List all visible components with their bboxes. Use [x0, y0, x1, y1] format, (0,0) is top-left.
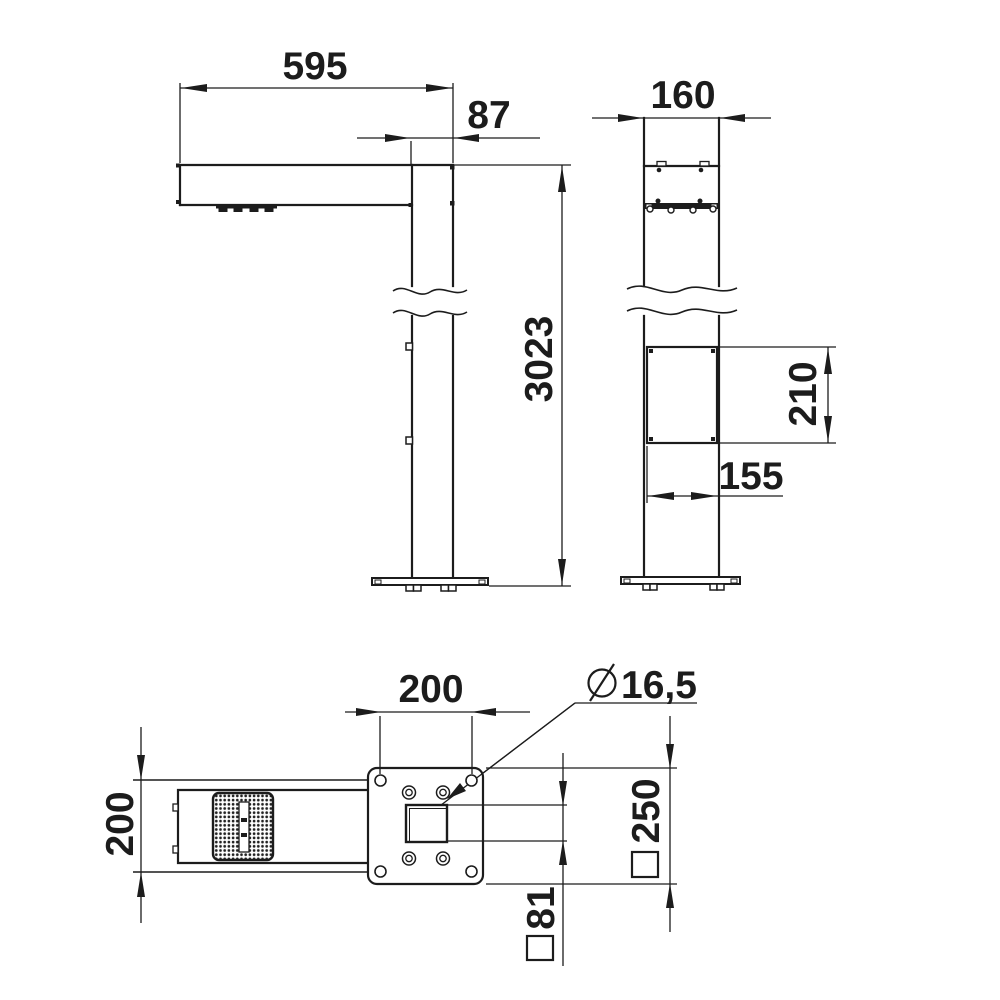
arrowhead	[618, 114, 643, 122]
arrowhead	[137, 755, 145, 780]
anchor-hole	[466, 866, 477, 877]
arrowhead	[691, 492, 717, 500]
square-symbol	[527, 936, 553, 960]
dim-pole-depth: 160	[592, 74, 771, 122]
dim-door-width: 155	[647, 446, 784, 503]
dim-label-pole-depth: 160	[650, 74, 715, 117]
arrowhead	[137, 872, 145, 897]
door-corner-screw	[649, 349, 653, 353]
door-outline	[647, 347, 717, 443]
arrowhead	[559, 781, 567, 806]
break-wave-bottom	[627, 308, 737, 314]
dim-label-hole-spacing: 200	[398, 668, 463, 711]
arrowhead	[720, 114, 745, 122]
arrowhead	[426, 84, 452, 92]
arrowhead	[471, 708, 496, 716]
foot-bolt	[650, 584, 657, 590]
dim-total-height: 3023	[453, 165, 571, 586]
access-door	[647, 347, 717, 443]
foot-bolt	[414, 585, 422, 591]
foot-bolt	[717, 584, 724, 590]
arrowhead	[666, 883, 674, 908]
hinge-mark	[406, 437, 413, 444]
screw-head	[668, 207, 674, 213]
pole-section-outer	[406, 805, 447, 842]
arrowhead	[558, 166, 566, 192]
tick	[176, 164, 180, 168]
side-view: 160 210 155	[592, 74, 836, 590]
screw-head	[710, 206, 716, 212]
door-corner-screw	[711, 349, 715, 353]
luminaire-panel	[213, 793, 273, 860]
dim-label-arm-length: 595	[282, 45, 347, 88]
screw-head	[690, 207, 696, 213]
break-wave-top	[393, 288, 467, 294]
plan-view: 16,5	[99, 664, 697, 966]
screw-head	[647, 206, 653, 212]
foot-bolt	[643, 584, 650, 590]
hinge-mark	[173, 846, 178, 853]
luminaire-tab	[219, 208, 228, 212]
front-base-plate	[372, 578, 488, 591]
anchor-hole	[466, 775, 477, 786]
foot-bolt	[441, 585, 449, 591]
dim-arm-length: 595	[180, 45, 453, 163]
arrowhead	[824, 416, 832, 442]
anchor-hole	[375, 866, 386, 877]
slot-mark	[241, 833, 247, 837]
anchor-hole	[375, 775, 386, 786]
break-wave-bottom	[393, 310, 467, 316]
dim-label-door-width: 155	[718, 455, 783, 498]
foot-bolt	[449, 585, 457, 591]
arrowhead	[648, 492, 674, 500]
slot-mark	[241, 818, 247, 822]
luminaire-strip	[216, 204, 277, 212]
tick	[450, 165, 455, 170]
luminaire-tab	[265, 208, 274, 212]
luminaire-bar-side	[645, 203, 718, 209]
door-corner-screw	[649, 437, 653, 441]
leader-line-over-plate	[428, 703, 575, 815]
arrowhead	[666, 744, 674, 769]
mount-tab	[700, 162, 709, 167]
tick	[176, 200, 180, 204]
washer	[403, 786, 416, 799]
arrowhead	[181, 84, 207, 92]
foot-bolt	[406, 585, 414, 591]
bolt-dot	[656, 199, 661, 204]
arm-joint-details	[644, 162, 719, 214]
dim-label-hole-diameter: 16,5	[621, 664, 697, 707]
arrowhead	[385, 134, 410, 142]
bolt-dot	[657, 168, 662, 173]
luminaire-tab	[234, 208, 243, 212]
bolt-dot	[698, 199, 703, 204]
technical-drawing: 595 87 3023	[0, 0, 1000, 1000]
dim-label-pole-width: 87	[467, 94, 510, 137]
dim-pole-width: 87	[357, 94, 540, 164]
mount-tab	[657, 162, 666, 167]
hinge-mark	[406, 343, 413, 350]
washer	[437, 786, 450, 799]
tick	[450, 201, 455, 206]
pole-outline	[393, 165, 467, 578]
square-symbol	[632, 852, 658, 877]
bolt-dot	[699, 168, 704, 173]
front-view: 595 87 3023	[176, 45, 571, 591]
dim-label-arm-width: 200	[99, 791, 142, 856]
luminaire-bar	[216, 204, 277, 209]
drawing-canvas: 595 87 3023	[0, 0, 1000, 1000]
luminaire-tab	[250, 208, 259, 212]
foot-bolt	[710, 584, 717, 590]
arrowhead	[824, 348, 832, 374]
arrowhead	[558, 559, 566, 585]
dim-label-base-plate-square: 250	[625, 778, 668, 843]
dim-label-total-height: 3023	[518, 316, 561, 403]
tick	[409, 203, 413, 207]
dim-label-door-height: 210	[782, 361, 825, 426]
dim-arm-width: 200	[99, 727, 145, 923]
door-corner-screw	[711, 437, 715, 441]
washer	[403, 852, 416, 865]
base-plate	[372, 578, 488, 585]
washer	[437, 852, 450, 865]
hinge-mark	[173, 804, 178, 811]
side-base-plate	[621, 577, 740, 590]
panel-slot	[239, 802, 249, 852]
base-plate	[621, 577, 740, 584]
arrowhead	[559, 840, 567, 865]
dim-label-pole-square: 81	[520, 886, 563, 929]
break-wave-top	[627, 286, 737, 292]
dim-door-height: 210	[720, 347, 836, 443]
arrowhead	[356, 708, 381, 716]
